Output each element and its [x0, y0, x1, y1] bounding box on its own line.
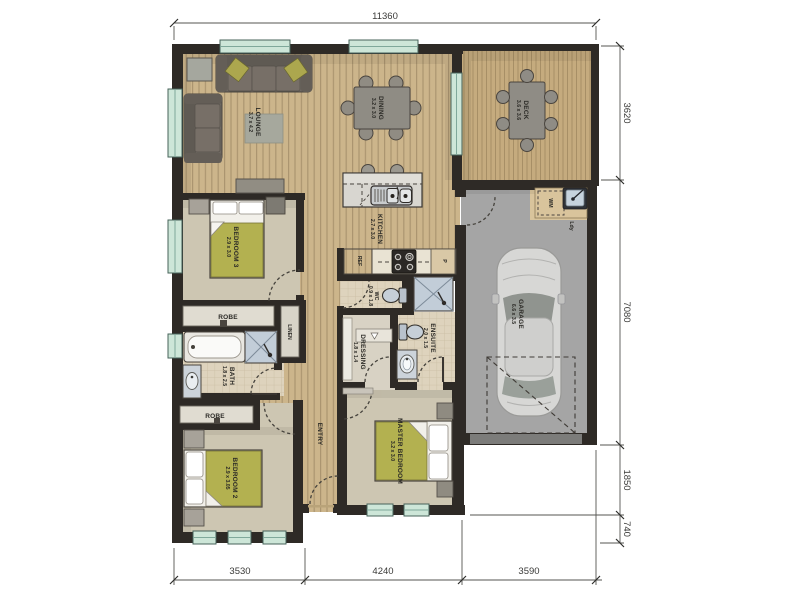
svg-text:2.7 x 3.0: 2.7 x 3.0 — [369, 219, 375, 239]
svg-text:DECK: DECK — [522, 100, 529, 119]
svg-text:3620: 3620 — [621, 102, 632, 123]
svg-text:3.2 x 3.0: 3.2 x 3.0 — [389, 441, 395, 461]
svg-text:REF: REF — [356, 256, 362, 266]
svg-text:3530: 3530 — [229, 566, 250, 577]
svg-text:ROBE: ROBE — [205, 413, 225, 420]
svg-text:3.6 x 3.6: 3.6 x 3.6 — [515, 100, 521, 120]
svg-text:DRESSING: DRESSING — [359, 334, 366, 370]
svg-text:ENSUITE: ENSUITE — [429, 323, 436, 353]
svg-text:KITCHEN: KITCHEN — [376, 214, 383, 244]
svg-text:P: P — [441, 259, 447, 263]
svg-text:WM: WM — [547, 198, 553, 207]
svg-text:MASTER BEDROOM: MASTER BEDROOM — [396, 418, 403, 484]
svg-text:GARAGE: GARAGE — [517, 299, 524, 329]
svg-text:Ldy: Ldy — [568, 221, 574, 230]
svg-text:BEDROOM 2: BEDROOM 2 — [231, 457, 238, 498]
svg-text:1.8 x 1.4: 1.8 x 1.4 — [352, 342, 358, 362]
svg-text:0.9 x 1.8: 0.9 x 1.8 — [367, 286, 373, 306]
svg-text:DINING: DINING — [377, 96, 384, 120]
svg-text:3590: 3590 — [518, 566, 539, 577]
svg-text:3.7 x 4.2: 3.7 x 4.2 — [247, 112, 253, 132]
svg-text:LOUNGE: LOUNGE — [254, 107, 261, 136]
svg-text:2.9 x 3.05: 2.9 x 3.05 — [224, 466, 230, 489]
svg-text:ENTRY: ENTRY — [316, 423, 323, 446]
svg-text:2.0 x 1.5: 2.0 x 1.5 — [422, 328, 428, 348]
svg-text:3.2 x 3.0: 3.2 x 3.0 — [370, 98, 376, 118]
svg-text:BEDROOM 3: BEDROOM 3 — [232, 226, 239, 267]
svg-text:BATH: BATH — [228, 367, 235, 385]
svg-text:7080: 7080 — [621, 301, 632, 322]
svg-text:ROBE: ROBE — [218, 314, 238, 321]
svg-text:6.6 x 3.5: 6.6 x 3.5 — [510, 304, 516, 324]
svg-text:1850: 1850 — [621, 469, 632, 490]
svg-text:11360: 11360 — [372, 11, 398, 22]
svg-text:4240: 4240 — [372, 566, 393, 577]
svg-text:1.8 x 2.5: 1.8 x 2.5 — [221, 366, 227, 386]
svg-text:2.9 x 3.0: 2.9 x 3.0 — [225, 237, 231, 257]
svg-text:LINEN: LINEN — [286, 324, 292, 340]
svg-text:740: 740 — [621, 521, 632, 537]
